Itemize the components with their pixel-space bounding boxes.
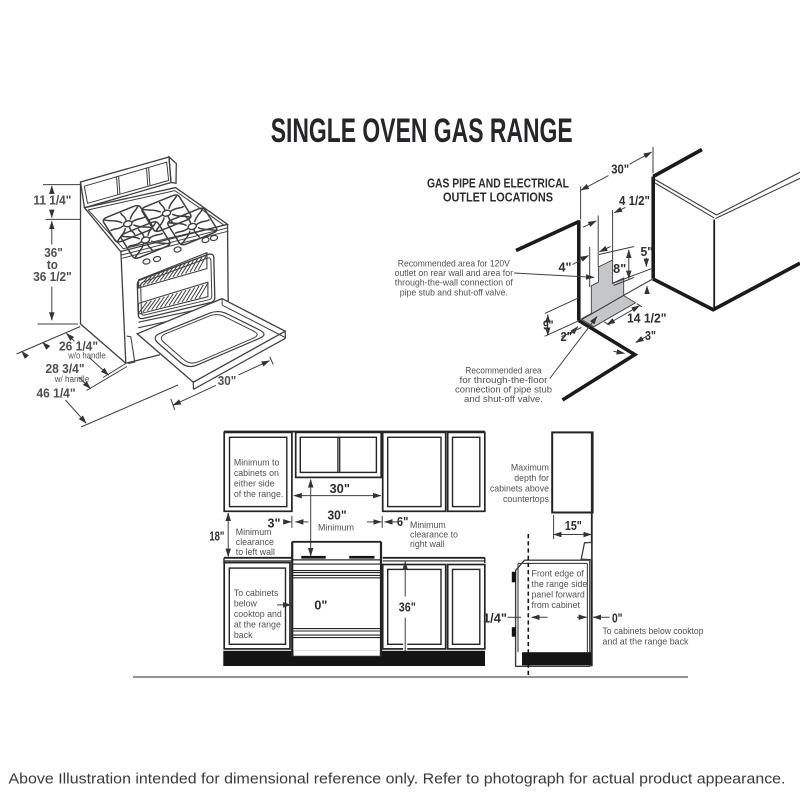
- svg-text:Minimum: Minimum: [410, 520, 446, 530]
- svg-text:9": 9": [543, 319, 554, 333]
- svg-text:To cabinets: To cabinets: [234, 588, 279, 598]
- svg-text:SINGLE OVEN GAS RANGE: SINGLE OVEN GAS RANGE: [271, 112, 573, 150]
- svg-text:panel forward: panel forward: [532, 590, 585, 600]
- svg-text:Recommended area for 120V: Recommended area for 120V: [398, 258, 510, 268]
- svg-text:8": 8": [613, 262, 626, 276]
- svg-text:back: back: [234, 630, 253, 640]
- svg-text:Minimum: Minimum: [236, 527, 272, 537]
- svg-text:36": 36": [399, 601, 416, 615]
- svg-text:4 1/2": 4 1/2": [619, 194, 650, 208]
- svg-text:outlet on rear wall and area f: outlet on rear wall and area for: [395, 268, 513, 278]
- svg-text:Recommended area: Recommended area: [465, 366, 542, 376]
- svg-text:cabinets above: cabinets above: [490, 484, 549, 494]
- svg-text:3": 3": [645, 329, 656, 343]
- svg-text:of the range.: of the range.: [234, 489, 283, 499]
- svg-text:OUTLET LOCATIONS: OUTLET LOCATIONS: [443, 191, 553, 205]
- svg-text:and at the range back: and at the range back: [603, 636, 690, 646]
- svg-text:14 1/2": 14 1/2": [627, 312, 667, 326]
- svg-text:30": 30": [611, 162, 629, 176]
- svg-text:w/o handle: w/o handle: [67, 351, 105, 361]
- svg-text:11 1/4": 11 1/4": [33, 192, 71, 207]
- svg-text:at the range: at the range: [234, 620, 281, 630]
- svg-text:clearance: clearance: [236, 537, 274, 547]
- svg-text:to left wall: to left wall: [236, 547, 275, 557]
- svg-text:Above Illustration intended fo: Above Illustration intended for dimensio…: [9, 772, 786, 788]
- svg-text:below: below: [234, 598, 258, 608]
- svg-text:Minimum to: Minimum to: [234, 458, 280, 468]
- svg-text:To cabinets below cooktop: To cabinets below cooktop: [603, 626, 704, 636]
- svg-text:36 1/2": 36 1/2": [33, 269, 71, 284]
- svg-text:Maximum: Maximum: [511, 463, 549, 473]
- svg-text:right wall: right wall: [410, 539, 445, 549]
- svg-text:cooktop and: cooktop and: [234, 609, 282, 619]
- svg-text:pipe stub and shut-off valve.: pipe stub and shut-off valve.: [400, 287, 508, 297]
- svg-text:depth for: depth for: [514, 473, 549, 483]
- svg-text:from cabinet: from cabinet: [532, 600, 581, 610]
- svg-text:connection of pipe stub: connection of pipe stub: [455, 385, 552, 395]
- svg-text:0": 0": [314, 599, 327, 613]
- svg-text:2": 2": [561, 330, 573, 344]
- svg-text:30": 30": [330, 482, 351, 496]
- svg-text:the range side: the range side: [532, 579, 588, 589]
- svg-text:GAS PIPE AND ELECTRICAL: GAS PIPE AND ELECTRICAL: [427, 177, 569, 191]
- svg-text:6": 6": [397, 515, 409, 529]
- svg-text:Minimum: Minimum: [318, 523, 354, 533]
- svg-text:countertops: countertops: [503, 494, 550, 504]
- svg-text:either side: either side: [234, 479, 275, 489]
- svg-text:18": 18": [209, 530, 224, 544]
- svg-text:15": 15": [565, 519, 582, 533]
- svg-text:clearance to: clearance to: [410, 530, 458, 540]
- svg-text:and shut-off valve.: and shut-off valve.: [464, 394, 543, 404]
- svg-text:4": 4": [559, 261, 572, 275]
- svg-text:through-the-wall connection of: through-the-wall connection of: [395, 278, 514, 288]
- svg-text:cabinets on: cabinets on: [234, 468, 279, 478]
- svg-text:for through-the-floor: for through-the-floor: [460, 375, 548, 385]
- svg-text:5": 5": [641, 245, 654, 259]
- svg-text:1/4": 1/4": [483, 612, 507, 626]
- svg-text:30": 30": [218, 373, 237, 388]
- svg-text:Front edge of: Front edge of: [532, 569, 585, 579]
- svg-text:46 1/4": 46 1/4": [37, 386, 76, 401]
- svg-text:w/ handle: w/ handle: [54, 374, 90, 384]
- svg-text:0": 0": [612, 612, 623, 626]
- svg-text:30": 30": [328, 509, 347, 523]
